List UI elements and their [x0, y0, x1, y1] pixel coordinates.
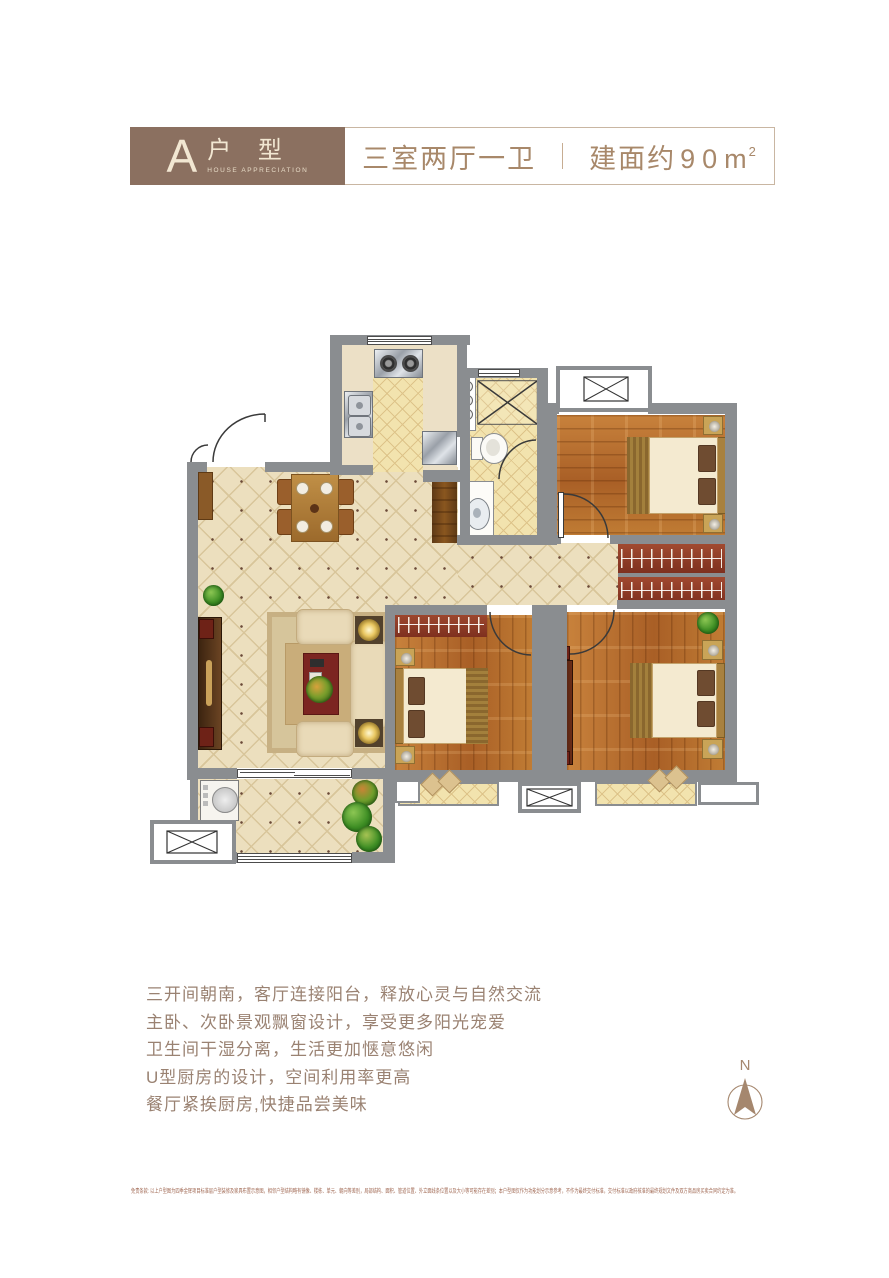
brochure-page: A 户 型 HOUSE APPRECIATION 三室两厅一卫 建面约 90 m…: [0, 0, 889, 1278]
wall: [385, 605, 487, 615]
washing-machine: [200, 780, 239, 821]
pillow: [408, 710, 425, 738]
nightstand: [395, 648, 415, 666]
pillow: [698, 478, 716, 505]
kitchen-window: [367, 336, 432, 345]
feature-line: U型厨房的设计，空间利用率更高: [146, 1064, 542, 1092]
side-window: [395, 780, 420, 803]
north-label: N: [740, 1057, 751, 1074]
compass-arrow-icon: [734, 1078, 756, 1115]
bedroom3-plant: [697, 612, 719, 634]
feature-list: 三开间朝南，客厅连接阳台，释放心灵与自然交流 主卧、次卧景观飘窗设计，享受更多阳…: [146, 981, 542, 1119]
area-unit: m: [724, 144, 749, 175]
pillow: [698, 445, 716, 472]
nightstand: [703, 416, 723, 435]
wall: [545, 403, 557, 545]
three-seat-sofa: [350, 640, 389, 728]
balcony-window: [237, 853, 352, 863]
wall: [610, 535, 725, 544]
bedroom3-door: [568, 608, 618, 656]
wall: [460, 375, 470, 543]
pillow: [408, 677, 425, 705]
ledge-under-bedroom3: [595, 782, 697, 806]
stove: [374, 349, 423, 378]
nightstand: [395, 746, 415, 764]
table-flowers: [306, 676, 333, 703]
bedroom2-door: [488, 610, 533, 657]
bathroom-door: [497, 438, 538, 481]
wall: [330, 335, 342, 472]
kitchen-walkway-floor: [373, 377, 423, 472]
master-bay-window: [556, 366, 652, 412]
wall: [532, 605, 567, 782]
wall: [457, 535, 555, 545]
side-table: [355, 719, 383, 747]
armchair: [296, 609, 354, 645]
armchair: [296, 721, 354, 757]
header-type-badge: A 户 型 HOUSE APPRECIATION: [130, 127, 345, 185]
hall-wood-threshold: [432, 475, 457, 543]
wall: [648, 403, 737, 414]
wall: [383, 768, 395, 863]
entry-door-small: [190, 444, 210, 464]
nightstand: [702, 640, 723, 660]
pillow: [697, 670, 715, 696]
compass: N: [714, 1052, 776, 1128]
wall: [187, 462, 198, 780]
bedroom3-headboard: [716, 663, 725, 738]
wall: [618, 573, 725, 577]
master-bedroom-door: [562, 492, 610, 540]
dining-chair: [337, 509, 354, 535]
kitchen-sink: [344, 391, 373, 438]
bathroom-window: [478, 369, 520, 377]
feature-line: 餐厅紧挨厨房,快捷品尝美味: [146, 1091, 542, 1119]
disclaimer: 免责条款: 以上户型图为四季金辉项目标准层户型装修及家具布置示意图，相邻户型结构…: [131, 1186, 738, 1195]
bedroom2-wardrobe: [395, 612, 487, 637]
area-exponent: 2: [749, 144, 758, 159]
wall: [385, 605, 395, 782]
speaker: [199, 727, 214, 747]
feature-line: 主卧、次卧景观飘窗设计，享受更多阳光宠爱: [146, 1009, 542, 1037]
area-number: 90: [680, 144, 724, 175]
wall: [725, 403, 737, 782]
nightstand: [703, 514, 723, 533]
bedroom2-blanket: [466, 668, 488, 744]
master-bed-blanket: [627, 437, 649, 514]
dining-chair: [337, 479, 354, 505]
area-prefix: 建面约: [589, 137, 676, 176]
bedroom-bay-window: [518, 782, 581, 813]
area-text: 建面约 90 m 2: [589, 137, 758, 176]
speaker: [199, 619, 214, 639]
indoor-plant: [203, 585, 224, 606]
type-letter: A: [167, 133, 198, 179]
feature-line: 三开间朝南，客厅连接阳台，释放心灵与自然交流: [146, 981, 542, 1009]
side-table: [355, 616, 383, 644]
entry-door-main: [211, 412, 267, 464]
type-caption: HOUSE APPRECIATION: [207, 167, 308, 174]
layout-text: 三室两厅一卫: [362, 137, 536, 176]
shoe-cabinet: [198, 472, 213, 520]
header-divider: [562, 143, 563, 169]
feature-line: 卫生间干湿分离，生活更加惬意悠闲: [146, 1036, 542, 1064]
dining-table: [291, 474, 339, 542]
wall: [330, 465, 373, 475]
wall: [617, 600, 725, 609]
balcony-sliding-door: [237, 769, 352, 778]
balcony-plant: [342, 780, 386, 854]
balcony-bay-window: [150, 820, 236, 864]
header-title: 三室两厅一卫 建面约 90 m 2: [345, 127, 775, 185]
shower-area: [477, 380, 538, 425]
type-label: 户 型: [207, 138, 308, 164]
nightstand: [702, 739, 723, 759]
master-wardrobe: [618, 544, 725, 573]
pillow: [697, 701, 715, 727]
ac-platform: [698, 782, 759, 805]
hallway-floor: [458, 543, 618, 605]
bedroom3-blanket: [630, 663, 652, 738]
refrigerator: [422, 431, 457, 465]
